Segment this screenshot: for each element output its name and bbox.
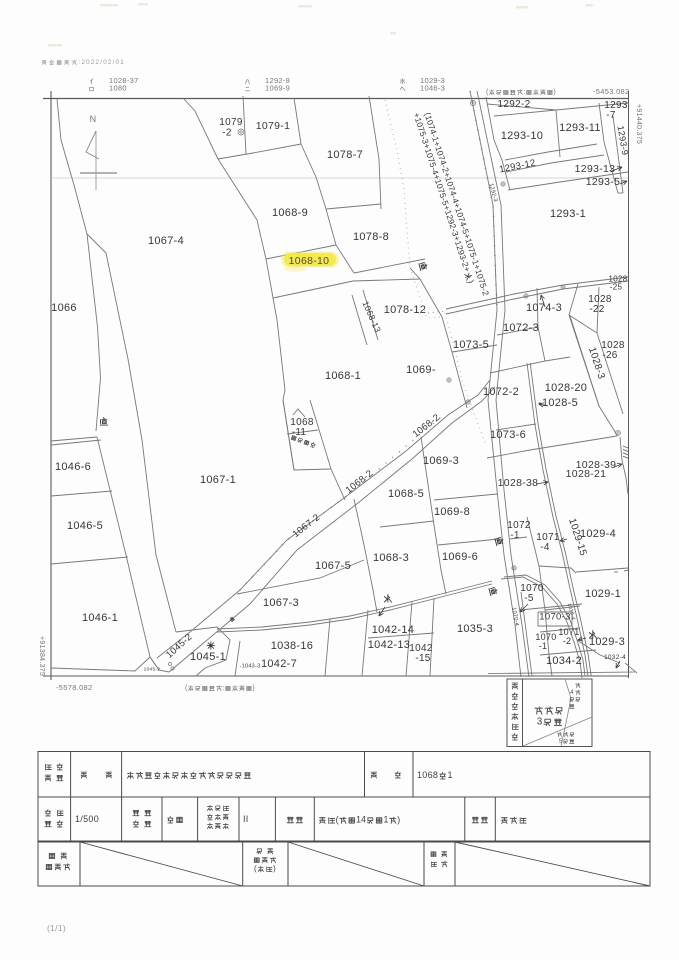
svg-text:1069-: 1069-	[406, 364, 436, 376]
svg-text:(1/1): (1/1)	[47, 923, 66, 933]
svg-text::: :	[222, 685, 224, 692]
svg-text:1034-2: 1034-2	[546, 655, 582, 667]
svg-text:1028-20: 1028-20	[545, 382, 587, 394]
svg-text:1046-6: 1046-6	[55, 461, 91, 473]
svg-text:1045-2: 1045-2	[144, 667, 161, 673]
svg-text:1: 1	[384, 815, 389, 825]
svg-text:1068-5: 1068-5	[388, 488, 424, 500]
svg-text:+91440.375: +91440.375	[635, 104, 642, 144]
svg-text:1078-12: 1078-12	[384, 304, 426, 316]
svg-text:1069-8: 1069-8	[434, 506, 470, 518]
svg-text:1069-9: 1069-9	[265, 84, 290, 93]
svg-text:1079-1: 1079-1	[256, 120, 291, 132]
svg-text:1046-1: 1046-1	[82, 612, 118, 624]
svg-text:1068-9: 1068-9	[272, 207, 308, 219]
svg-text:-11: -11	[292, 427, 307, 438]
svg-text:1029-4: 1029-4	[580, 528, 616, 540]
svg-text:3: 3	[537, 717, 543, 728]
svg-text:): )	[273, 864, 276, 873]
svg-text:-15: -15	[415, 653, 430, 664]
svg-text:-2: -2	[222, 128, 232, 139]
svg-text:1066: 1066	[51, 302, 77, 314]
svg-text:1029-3: 1029-3	[589, 636, 625, 648]
svg-text:(: (	[336, 815, 339, 825]
svg-text:1067-4: 1067-4	[148, 235, 184, 247]
svg-text:1: 1	[448, 770, 453, 780]
svg-text:1293-13: 1293-13	[575, 163, 616, 175]
svg-text:-1028-5: -1028-5	[538, 397, 578, 409]
svg-text:1078-7: 1078-7	[327, 149, 363, 161]
svg-text:1069-3: 1069-3	[423, 455, 459, 467]
svg-text:-1: -1	[539, 641, 548, 651]
svg-text:1069-6: 1069-6	[442, 551, 478, 563]
svg-text:1068-10: 1068-10	[289, 255, 330, 267]
svg-text:+91384.375: +91384.375	[38, 636, 45, 676]
svg-text:1067-3: 1067-3	[263, 597, 299, 609]
svg-text:1/500: 1/500	[75, 814, 99, 824]
svg-text:-25: -25	[610, 283, 623, 292]
svg-text:-26: -26	[602, 350, 617, 361]
svg-text:1293-5: 1293-5	[586, 176, 621, 188]
svg-text:1028-21: 1028-21	[566, 468, 607, 480]
svg-text:1072-2: 1072-2	[483, 386, 519, 398]
svg-text:-5: -5	[524, 593, 534, 604]
svg-text:1292-2: 1292-2	[498, 99, 531, 110]
svg-text:-2: -2	[563, 636, 572, 646]
svg-text:-4: -4	[540, 542, 550, 553]
svg-text:1032-4: 1032-4	[604, 654, 626, 661]
svg-text:1042-14: 1042-14	[372, 624, 414, 636]
svg-text:1293-1: 1293-1	[550, 208, 586, 220]
svg-text:1072-3: 1072-3	[503, 322, 539, 334]
svg-text:4: 4	[570, 689, 574, 696]
svg-text:1046-3: 1046-3	[420, 84, 445, 93]
svg-text:): )	[553, 89, 555, 96]
svg-text::2022/02/01: :2022/02/01	[79, 59, 125, 66]
svg-text:1067-1: 1067-1	[200, 474, 236, 486]
svg-text:-1: -1	[510, 530, 520, 541]
svg-text:1080: 1080	[109, 84, 127, 93]
svg-text:1293-10: 1293-10	[501, 130, 543, 142]
svg-text:1046-5: 1046-5	[67, 520, 103, 532]
svg-text:1067-5: 1067-5	[315, 560, 351, 572]
svg-text:1079: 1079	[219, 117, 243, 128]
svg-text:5: 5	[559, 739, 563, 745]
svg-text::: :	[523, 89, 525, 96]
svg-text:): )	[397, 815, 400, 825]
svg-text:1070-3: 1070-3	[539, 612, 570, 623]
svg-text:-7: -7	[606, 110, 616, 121]
svg-text:14: 14	[356, 815, 366, 825]
svg-text:1293-11: 1293-11	[559, 122, 601, 134]
svg-text:1068-1: 1068-1	[325, 370, 361, 382]
svg-text:1042-7: 1042-7	[261, 658, 297, 670]
svg-text:II: II	[243, 814, 249, 824]
svg-text:1035-3: 1035-3	[457, 623, 493, 635]
svg-text:1045-1: 1045-1	[190, 651, 226, 663]
svg-text:-1043-3: -1043-3	[239, 664, 260, 670]
svg-text:1028-38: 1028-38	[498, 477, 539, 489]
svg-text:-22: -22	[589, 304, 604, 315]
svg-text:1073-6: 1073-6	[490, 429, 526, 441]
svg-text:1073-5: 1073-5	[453, 339, 489, 351]
svg-text:N: N	[90, 114, 97, 124]
svg-text:(: (	[254, 864, 257, 873]
svg-text:1068: 1068	[417, 770, 438, 780]
svg-text:-5578.082: -5578.082	[56, 683, 92, 692]
svg-text:1068-3: 1068-3	[373, 552, 409, 564]
svg-text:1029-1: 1029-1	[585, 588, 621, 600]
svg-text:-5453.082: -5453.082	[593, 87, 629, 96]
svg-text:1042-13: 1042-13	[368, 639, 410, 651]
svg-text:1038-16: 1038-16	[271, 640, 313, 652]
svg-text:): )	[252, 685, 254, 692]
svg-text:1078-8: 1078-8	[353, 231, 389, 243]
